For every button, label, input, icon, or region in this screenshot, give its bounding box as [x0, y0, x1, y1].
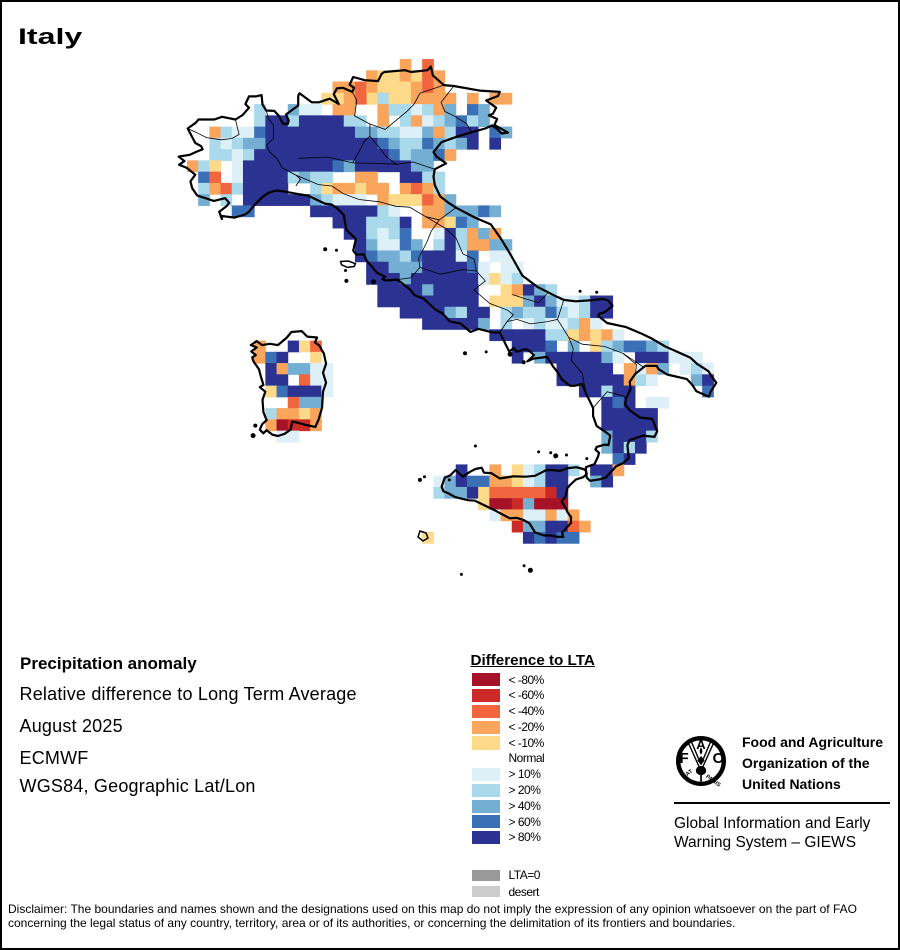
svg-text:O: O	[713, 750, 725, 767]
svg-text:F: F	[680, 750, 689, 767]
